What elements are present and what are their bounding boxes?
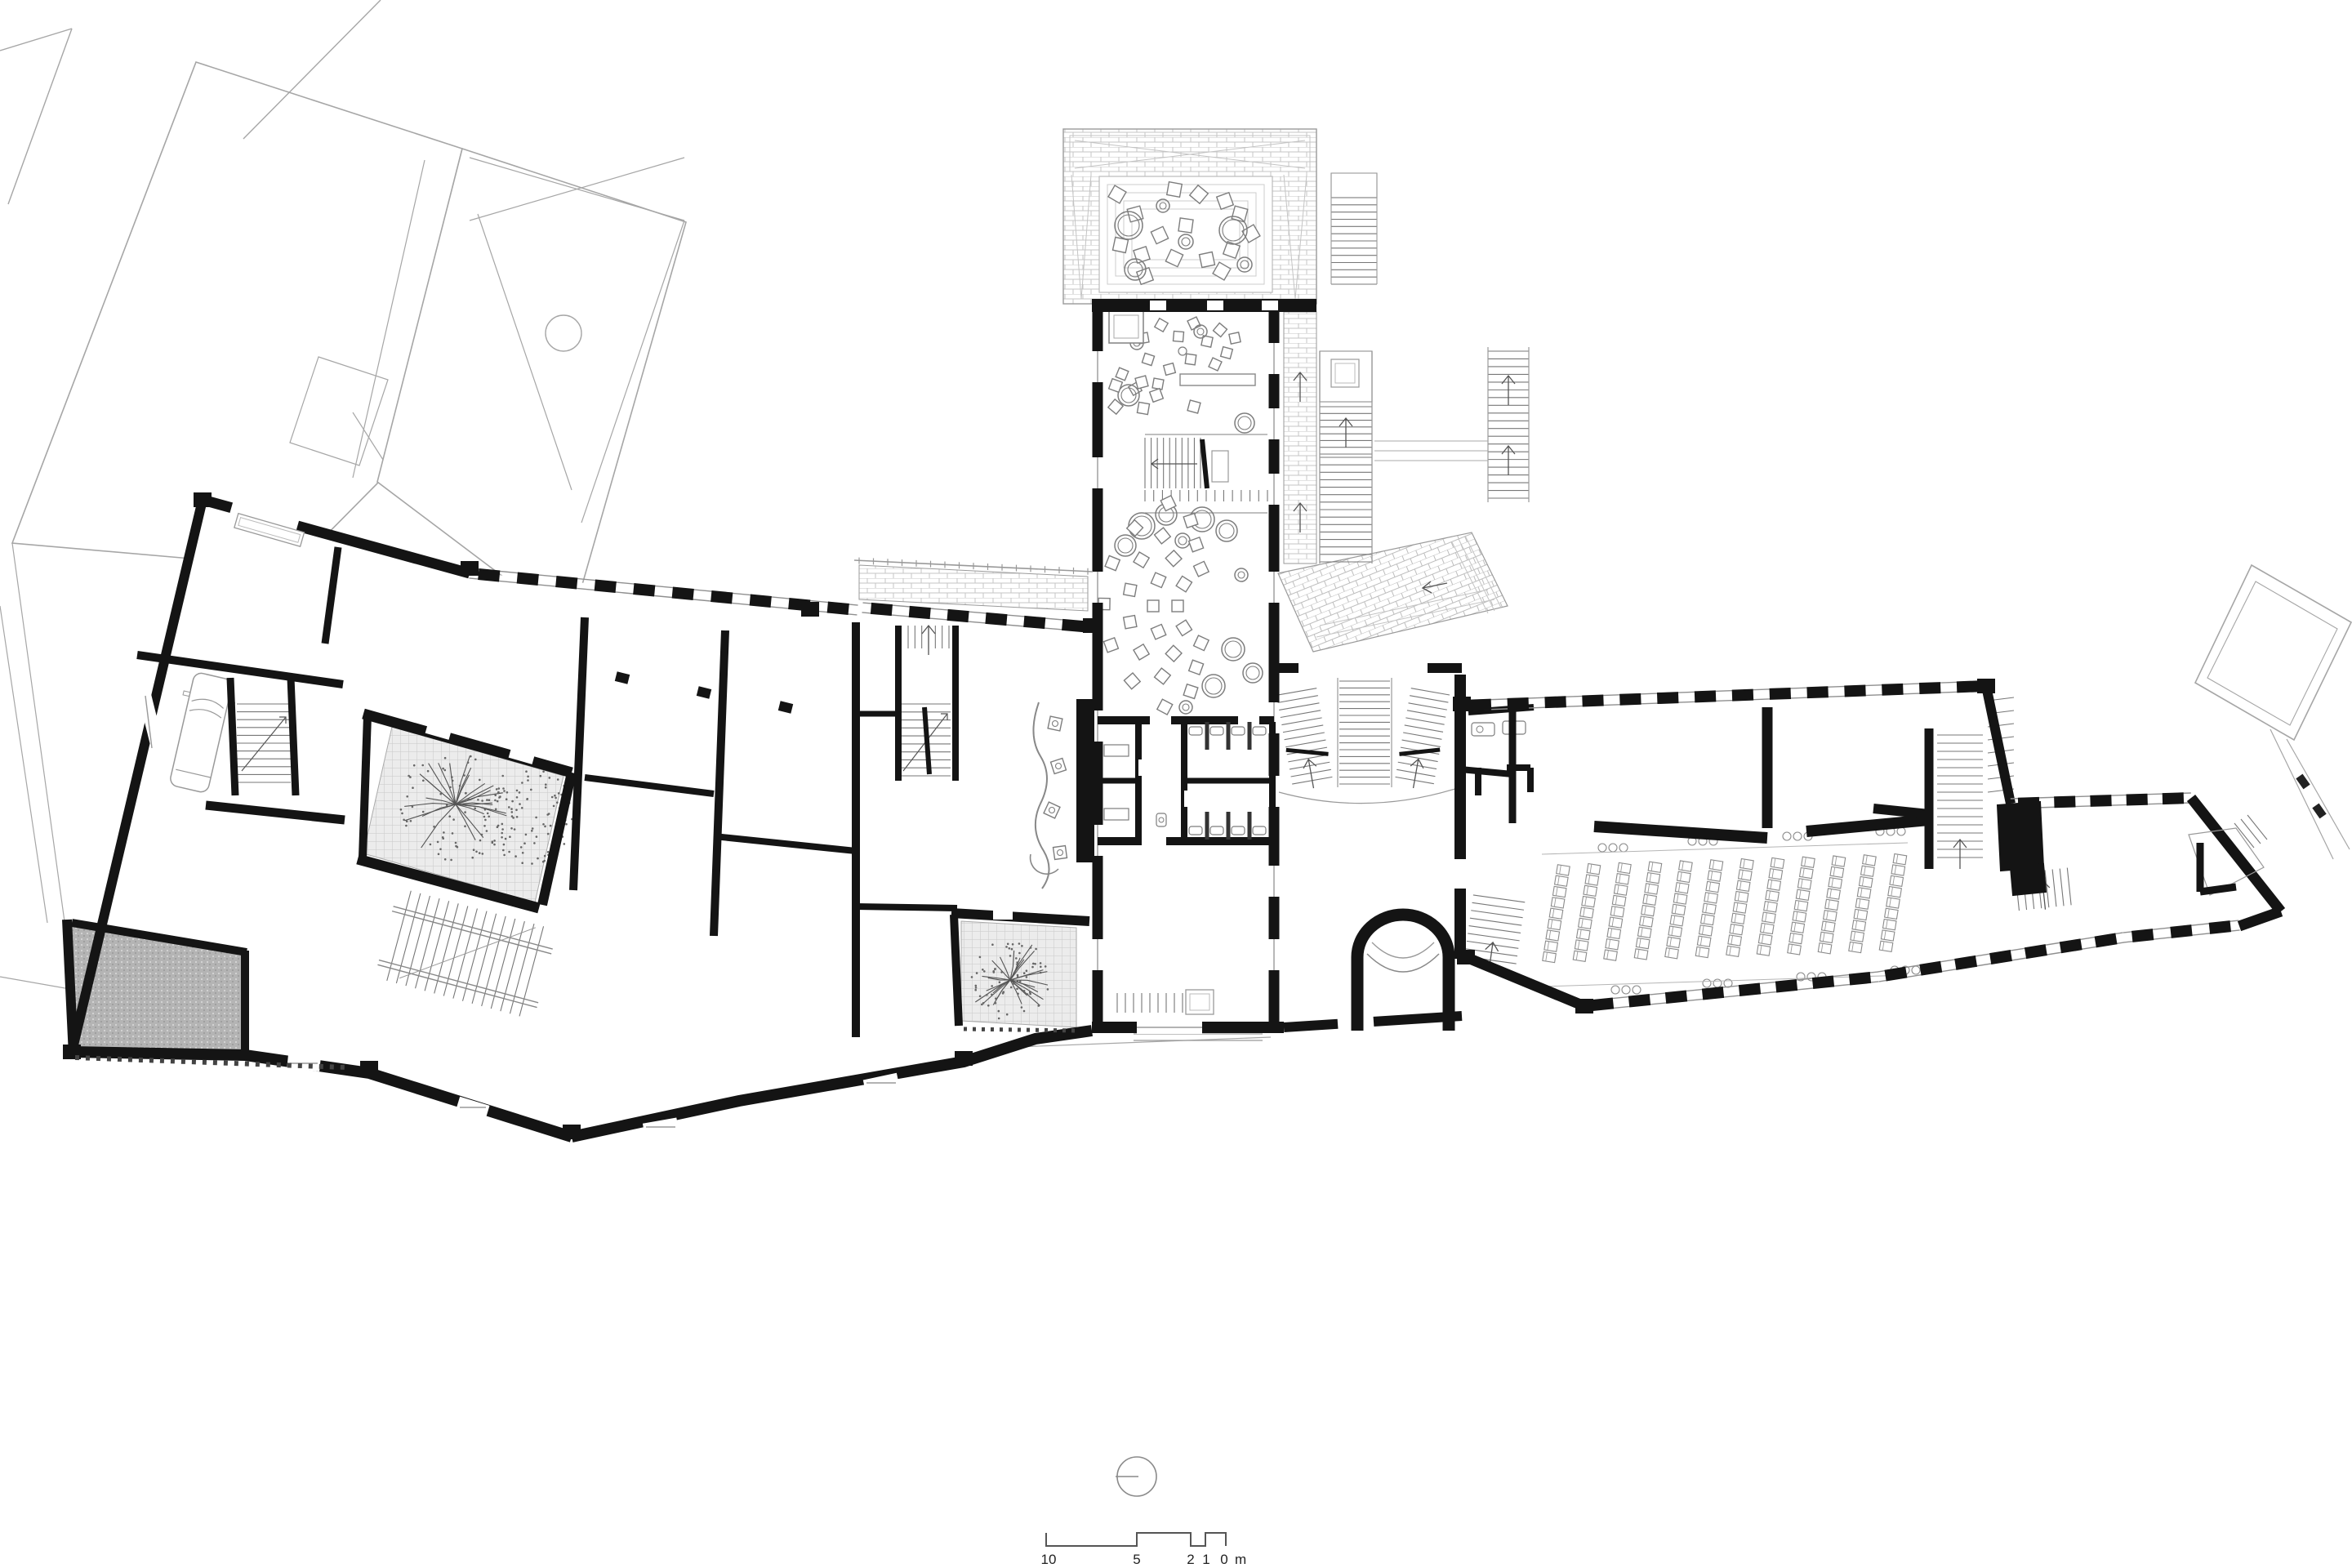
roof-terrace <box>1063 129 1316 304</box>
scale-label-10: 10 <box>1041 1552 1057 1567</box>
scale-label-0: 0 <box>1220 1552 1227 1567</box>
north-arrow-icon <box>1116 1457 1156 1496</box>
scale-unit: m <box>1235 1552 1246 1567</box>
floor-plan-svg: 10 5 2 1 0 m <box>0 0 2352 1568</box>
scale-label-1: 1 <box>1202 1552 1209 1567</box>
floor-plan-canvas: 10 5 2 1 0 m <box>0 0 2352 1568</box>
scale-label-5: 5 <box>1133 1552 1140 1567</box>
scale-label-2: 2 <box>1187 1552 1194 1567</box>
legend: 10 5 2 1 0 m <box>1041 1457 1247 1567</box>
scale-bar: 10 5 2 1 0 m <box>1041 1533 1247 1567</box>
